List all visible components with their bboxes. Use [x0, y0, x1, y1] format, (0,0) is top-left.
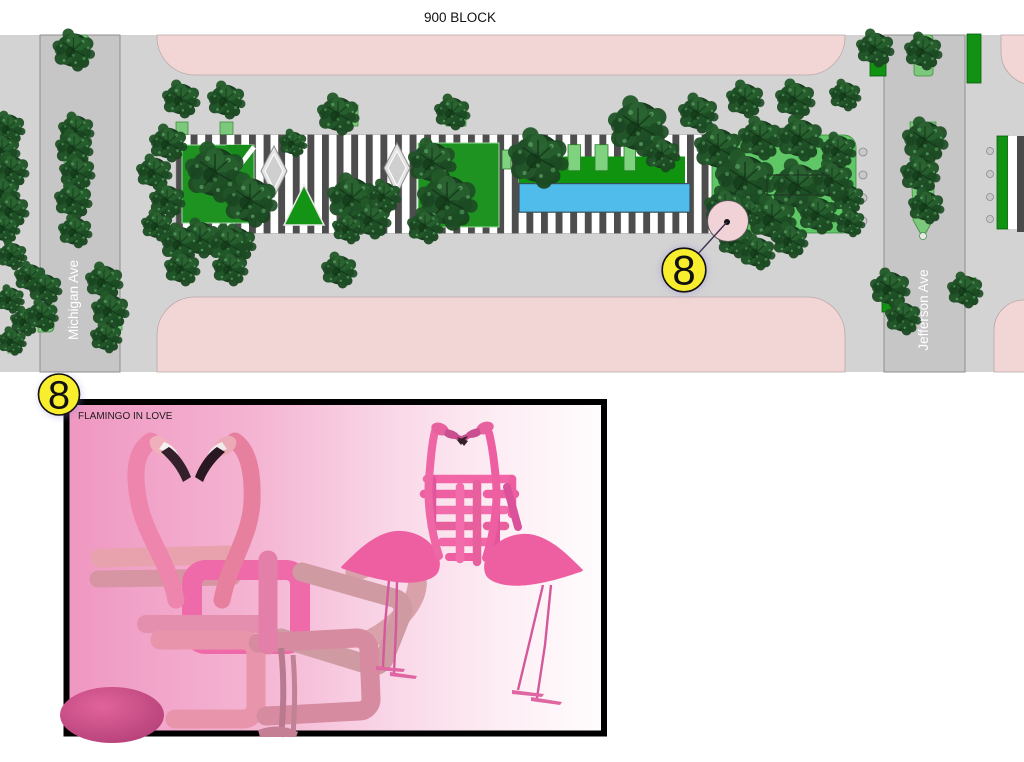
- svg-text:8: 8: [48, 374, 70, 418]
- svg-text:Jefferson Ave: Jefferson Ave: [916, 269, 931, 350]
- svg-text:900 BLOCK: 900 BLOCK: [424, 10, 496, 25]
- svg-text:FLAMINGO IN LOVE: FLAMINGO IN LOVE: [78, 411, 173, 422]
- svg-text:8: 8: [672, 247, 695, 294]
- svg-text:Michigan Ave: Michigan Ave: [66, 260, 81, 340]
